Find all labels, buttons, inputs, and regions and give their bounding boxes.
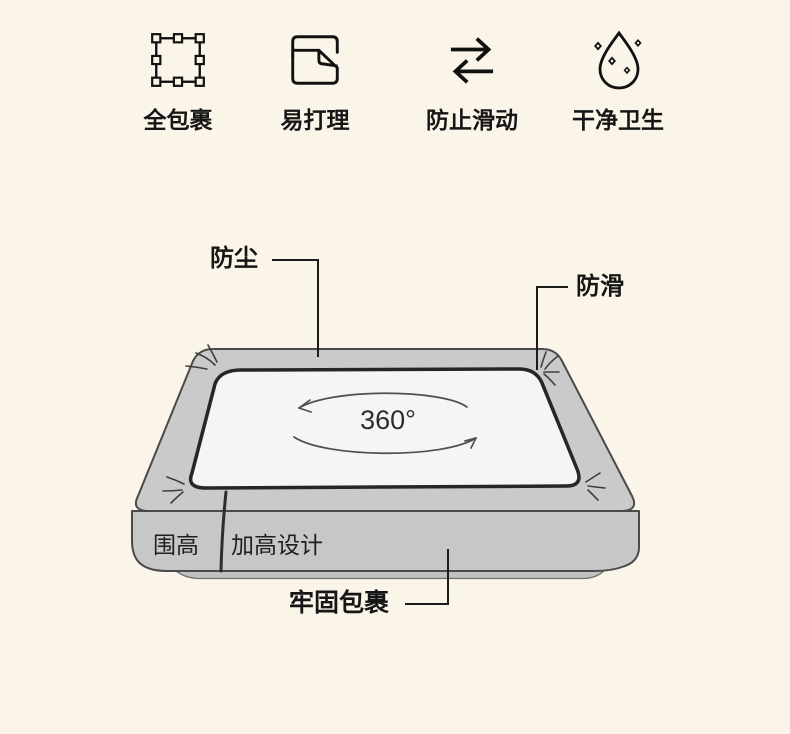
callout-label-antislip: 防滑 xyxy=(576,274,624,299)
callout-label-dustproof: 防尘 xyxy=(210,246,258,271)
callout-label-secure-wrap: 牢固包裹 xyxy=(289,590,389,616)
rotation-360-label: 360° xyxy=(348,406,428,434)
callout-line-dustproof xyxy=(272,260,318,357)
side-label-height-ring: 围高 xyxy=(153,533,199,557)
mattress-front-face xyxy=(132,511,639,571)
product-infographic: 全包裹 易打理 防止滑动 xyxy=(0,0,790,734)
mattress-diagram xyxy=(0,0,790,734)
side-label-raised-design: 加高设计 xyxy=(231,533,323,557)
